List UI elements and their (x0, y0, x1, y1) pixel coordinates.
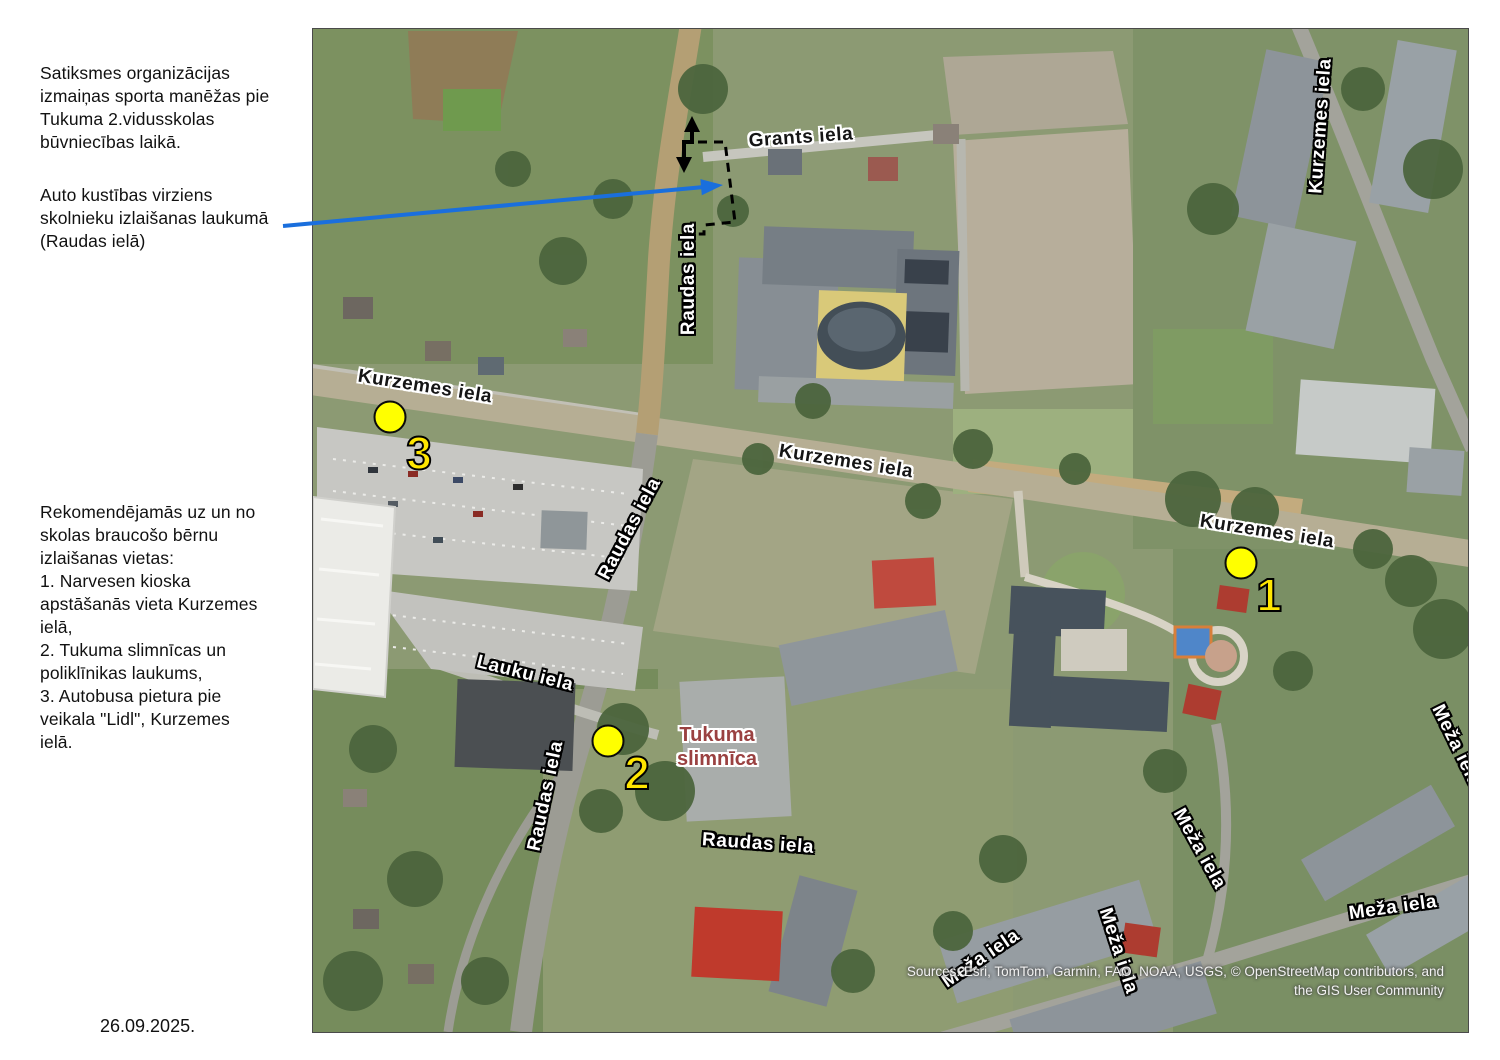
two-way-arrow-icon (676, 116, 700, 173)
construction-zone-outline (680, 142, 735, 234)
date-label: 26.09.2025. (100, 1016, 195, 1037)
recommendations-note: Rekomendējamās uz un no skolas braucošo … (40, 501, 310, 754)
construction-note: Satiksmes organizācijas izmaiņas sporta … (40, 62, 300, 154)
map-viewport[interactable]: Grants iela Raudas iela Kurzemes iela Ku… (312, 28, 1469, 1033)
direction-note: Auto kustības virziens skolnieku izlaiša… (40, 184, 310, 253)
map-annotation-drawings (313, 29, 1468, 1032)
traffic-scheme-page: { "annotations": { "construction_note": … (0, 0, 1500, 1060)
